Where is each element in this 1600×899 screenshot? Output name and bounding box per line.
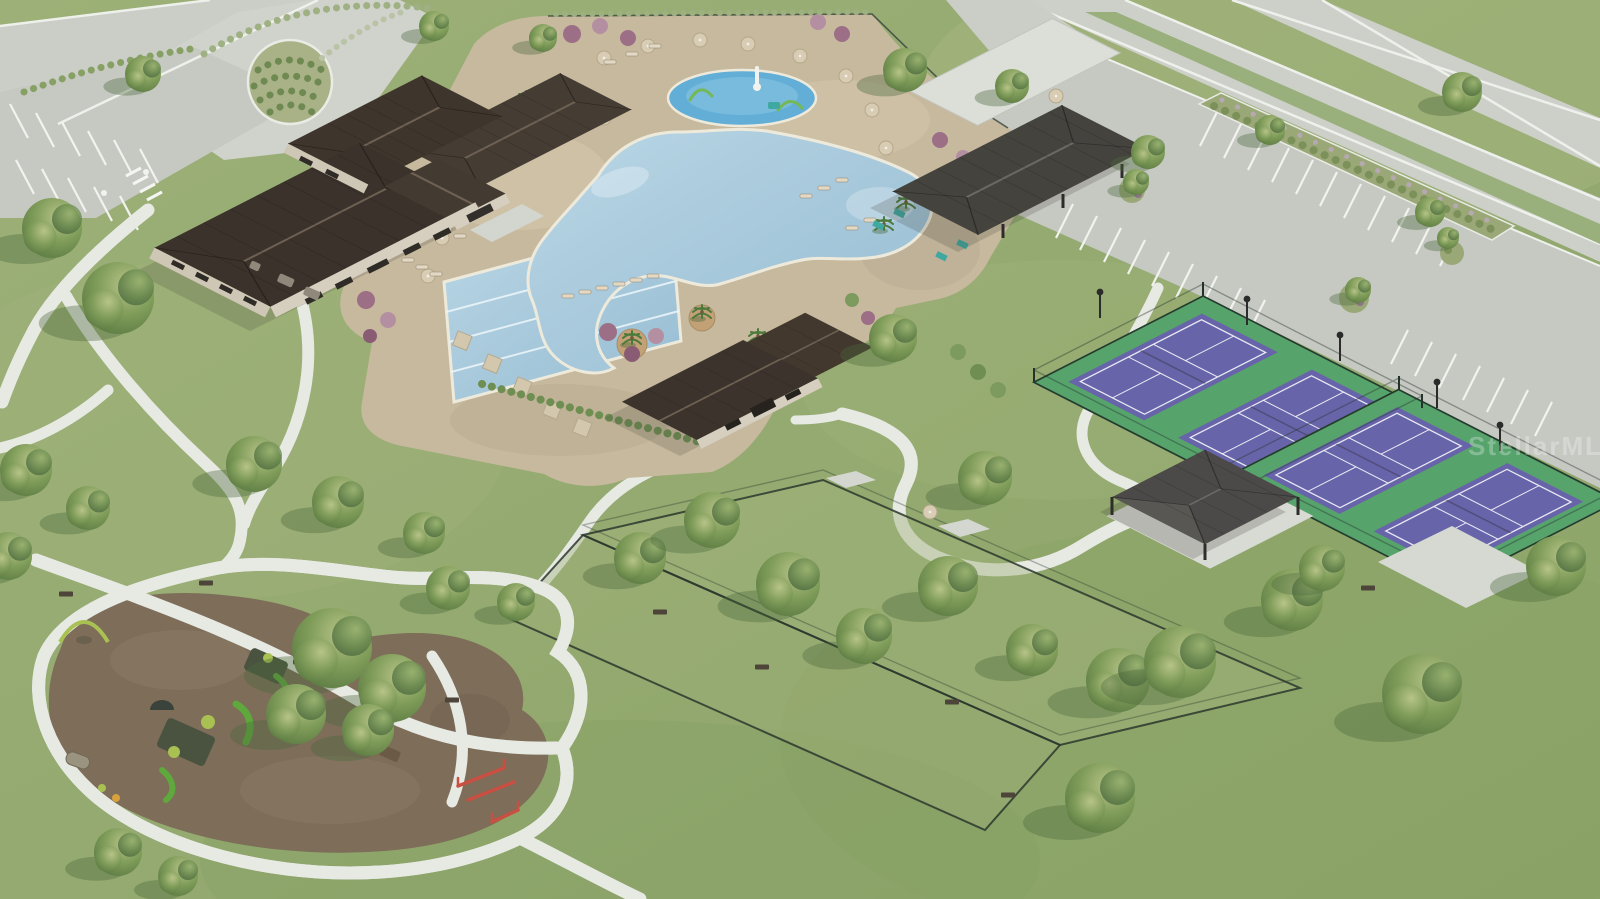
watermark: StellarMLS [1468, 431, 1600, 461]
roundabout-planter [248, 40, 332, 124]
site-plan-rendering: Aerial 3D site rendering of a community … [0, 0, 1600, 899]
splash-structure [768, 102, 780, 109]
spring-rider [112, 794, 120, 802]
deck-hedge [556, 12, 868, 14]
bench [653, 610, 667, 615]
bench [199, 581, 213, 586]
bench [945, 700, 959, 705]
handicap-symbol [143, 169, 149, 175]
bench [59, 592, 73, 597]
bench [445, 698, 459, 703]
bench [1001, 793, 1015, 798]
spring-rider [98, 784, 106, 792]
bench [1361, 586, 1375, 591]
handicap-symbol [101, 190, 107, 196]
bench [755, 665, 769, 670]
splash-pad [668, 68, 816, 126]
